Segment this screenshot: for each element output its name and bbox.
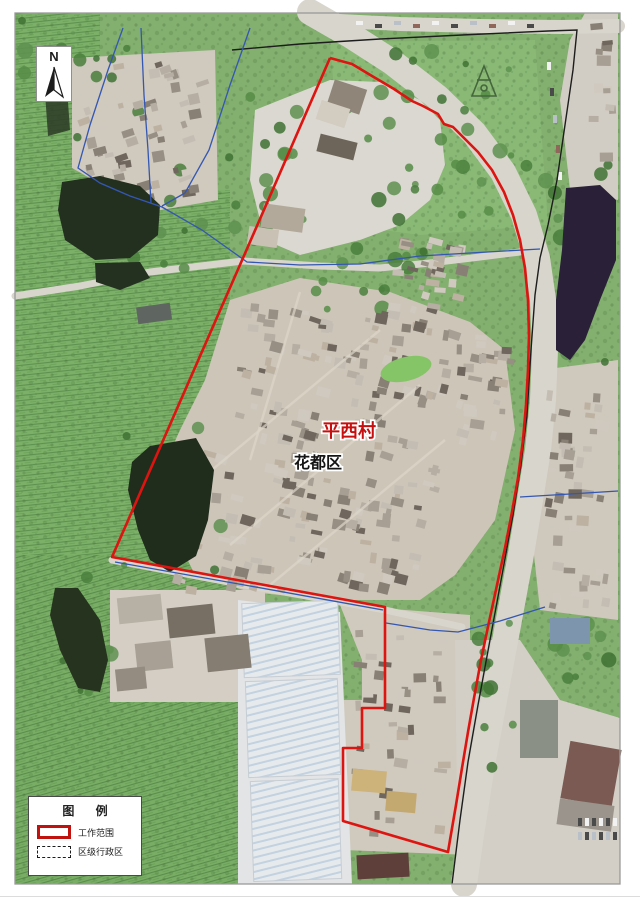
village-label: 平西村 xyxy=(322,420,376,441)
district-admin-swatch xyxy=(37,846,71,858)
map-page: 平西村 花都区 N 图 例 工作范围 区级行政区 xyxy=(0,0,640,904)
top-road xyxy=(320,20,618,27)
legend-item-label: 工作范围 xyxy=(78,826,114,839)
legend: 图 例 工作范围 区级行政区 xyxy=(28,796,142,876)
legend-item-work-scope: 工作范围 xyxy=(37,825,133,839)
north-arrow-icon xyxy=(42,65,66,99)
satellite-map: 平西村 花都区 xyxy=(0,0,640,904)
work-scope-swatch xyxy=(37,825,71,839)
north-letter: N xyxy=(49,49,58,65)
legend-item-label: 区级行政区 xyxy=(78,845,123,858)
district-label: 花都区 xyxy=(294,453,342,472)
legend-item-district-admin: 区级行政区 xyxy=(37,845,133,858)
page-divider xyxy=(0,896,640,897)
legend-title: 图 例 xyxy=(37,802,133,819)
north-arrow: N xyxy=(36,46,72,102)
